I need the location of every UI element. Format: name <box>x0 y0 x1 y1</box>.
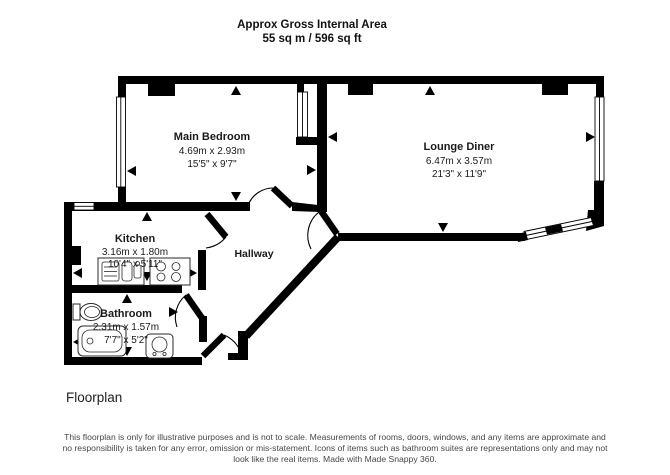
dim-arrow-bedroom-right <box>307 165 316 175</box>
label-lounge-diner: Lounge Diner <box>424 141 496 153</box>
door-leaf-bathroom <box>186 295 202 318</box>
toilet-icon <box>80 304 102 321</box>
dim-arrow-kitchen-up <box>142 212 152 221</box>
door-leaf-kitchen <box>207 214 226 237</box>
wall-bedroom-lounge-divider <box>317 84 327 212</box>
chimney-breast-lounge-left <box>348 84 373 95</box>
dim-arrow-kitchen-left <box>73 268 82 278</box>
dim-arrow-bathroom-up <box>122 294 132 303</box>
wall-hallway-bottom-stub <box>228 353 240 360</box>
floorplan-caption: Floorplan <box>66 390 122 405</box>
wall-lounge-bottom <box>338 233 525 241</box>
label-main-bedroom: Main Bedroom <box>174 131 251 143</box>
door-swing-bedroom <box>249 188 273 203</box>
label-kitchen: Kitchen <box>115 233 156 245</box>
wall-bedroom-bottom-right <box>292 202 320 212</box>
label-bathroom-metric: 2.31m x 1.57m <box>93 322 159 333</box>
dim-arrow-lounge-up <box>425 86 435 95</box>
label-kitchen-imperial: 10'4" x 5'11" <box>108 259 163 270</box>
door-leaf-bedroom <box>273 188 292 206</box>
dim-arrow-bedroom-down <box>231 192 241 201</box>
wall-kitchen-bathroom-divider <box>64 285 182 293</box>
dim-arrow-lounge-right <box>586 132 595 142</box>
wall-left-exterior <box>64 202 72 365</box>
wall-bottom-exterior <box>64 357 202 365</box>
label-lounge-diner-imperial: 21'3" x 11'9" <box>432 169 487 180</box>
door-leaf-lounge <box>321 211 337 234</box>
wall-niche-return <box>296 137 327 145</box>
door-swing-bathroom <box>175 295 186 327</box>
wall-niche-stub <box>297 84 304 92</box>
dim-arrow-lounge-left <box>328 132 337 142</box>
toilet-cistern-icon <box>73 304 80 320</box>
wall-kitchen-right <box>198 250 206 290</box>
label-bathroom: Bathroom <box>100 308 152 320</box>
label-hallway: Hallway <box>234 248 273 260</box>
door-swing-lounge <box>308 212 319 249</box>
wall-bedroom-left-upper <box>118 84 126 98</box>
dim-arrow-lounge-down <box>438 223 448 232</box>
dim-arrow-bedroom-left <box>127 166 136 176</box>
disclaimer-text: This floorplan is only for illustrative … <box>61 432 609 465</box>
label-main-bedroom-metric: 4.69m x 2.93m <box>179 146 245 157</box>
label-bathroom-imperial: 7'7" x 5'2" <box>104 335 148 346</box>
wall-lounge-right-lower <box>594 181 604 214</box>
chimney-breast-lounge-right <box>542 84 568 95</box>
chimney-breast-bedroom <box>148 84 175 96</box>
wall-lounge-right-upper <box>596 76 604 98</box>
dim-arrow-bedroom-up <box>231 86 241 95</box>
windows <box>74 92 604 242</box>
label-lounge-diner-metric: 6.47m x 3.57m <box>426 156 492 167</box>
door-swing-kitchen <box>206 237 226 248</box>
wall-bathroom-door-stub <box>199 316 207 342</box>
label-main-bedroom-imperial: 15'5" x 9'7" <box>187 159 237 170</box>
wall-kitchen-pillar <box>72 246 81 265</box>
wall-top <box>118 76 604 84</box>
window-chamfer-mullion <box>545 224 563 234</box>
wall-bedroom-left-lower <box>118 187 126 204</box>
basin-icon <box>146 334 173 358</box>
floorplan-page: Approx Gross Internal Area 55 sq m / 596… <box>0 0 670 475</box>
label-kitchen-metric: 3.16m x 1.80m <box>102 247 168 258</box>
